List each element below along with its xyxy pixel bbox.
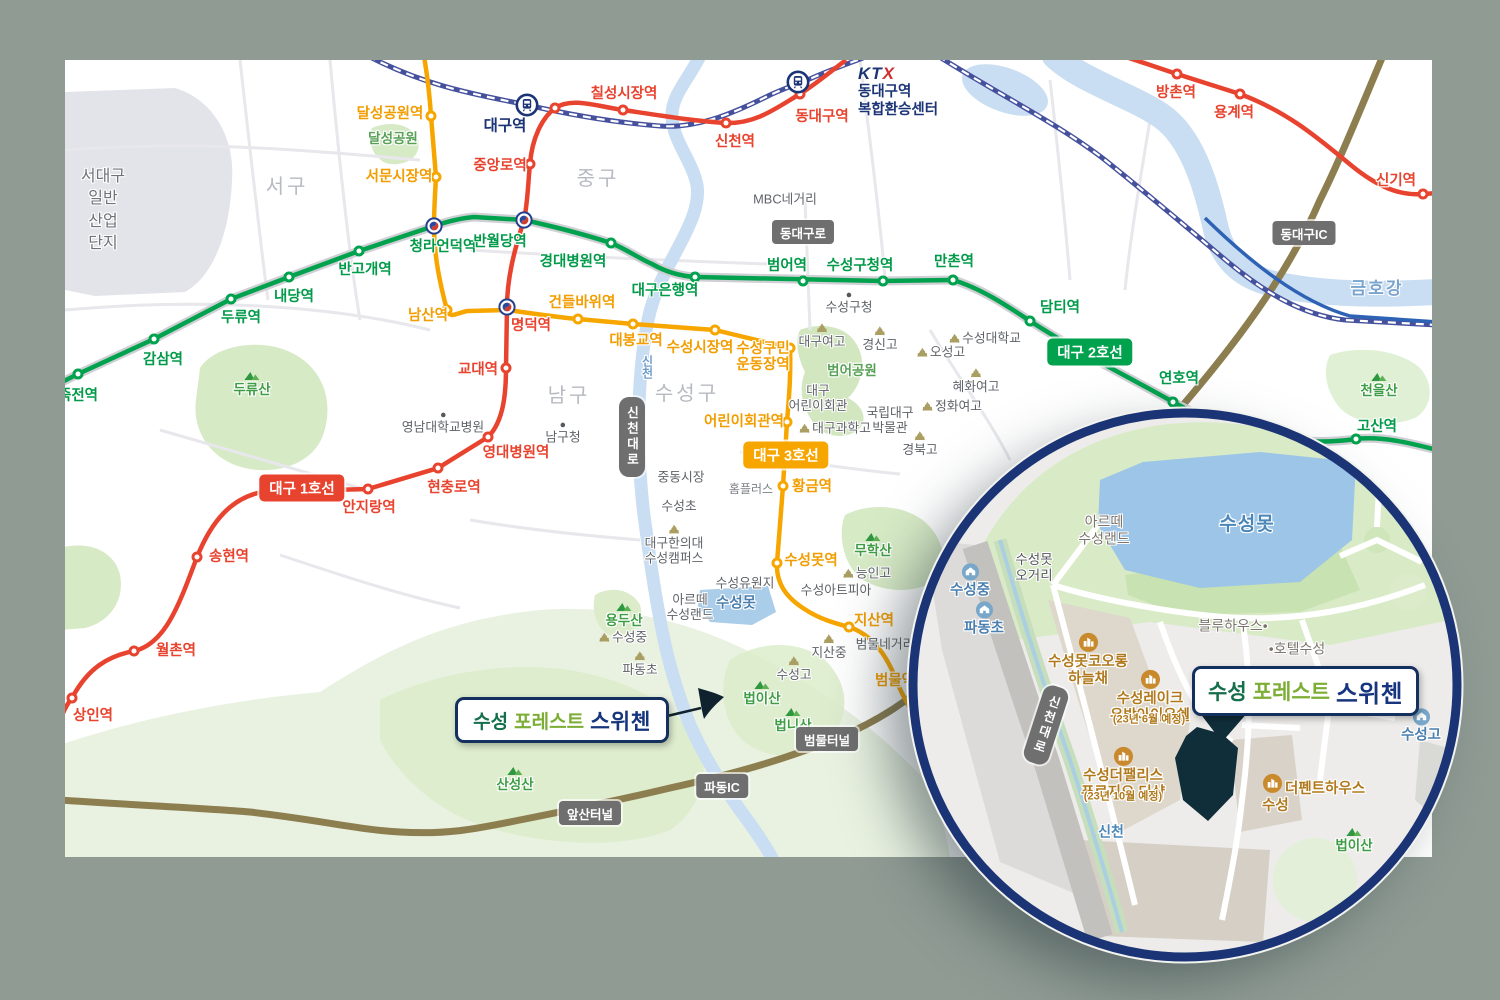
inset-label: 파동초 [964, 600, 1004, 637]
inset-label: (23년 10월 예정) [1084, 791, 1162, 804]
apartment-icon [1262, 773, 1283, 794]
inset-label: 블루하우스• [1198, 618, 1267, 635]
label-text: (23년 10월 예정) [1084, 791, 1162, 803]
label-text: 수성중 [950, 582, 990, 598]
label-text: 아르떼 수성랜드 [1078, 513, 1130, 546]
apartment-icon [1110, 669, 1190, 690]
inset-callout: 수성 포레스트 스위첸 [1192, 666, 1419, 716]
callout-part2: 포레스트 [1253, 676, 1330, 706]
inset-label: 수성못 [1219, 514, 1274, 536]
label-text: 블루하우스• [1198, 618, 1267, 634]
label-text: 신천 [1098, 824, 1124, 840]
inset-label: 법이산 [1335, 826, 1372, 854]
school-icon [950, 562, 990, 581]
mountain-icon [1335, 826, 1372, 837]
inset-label: 신천 [1098, 824, 1124, 841]
school-icon [964, 600, 1004, 619]
label-text: (23년 6월 예정) [1113, 714, 1185, 726]
inset-label: 수성중 [950, 562, 990, 599]
road-badge: 신천대로 [1021, 683, 1070, 767]
apartment-icon [1081, 746, 1165, 767]
inset-label: 수성못 오거리 [1015, 552, 1052, 584]
label-text: 수성고 [1401, 727, 1441, 743]
inset-label: 더펜트하우스 수성 [1262, 773, 1365, 815]
callout-part3: 스위첸 [1336, 674, 1403, 709]
inset-label: 아르떼 수성랜드 [1078, 513, 1130, 546]
callout-part1: 수성 [1208, 676, 1247, 706]
label-text: •호텔수성 [1269, 641, 1325, 657]
inset-label: (23년 6월 예정) [1113, 714, 1185, 727]
label-text: 파동초 [964, 620, 1004, 636]
apartment-icon [1048, 632, 1128, 653]
inset-label: •호텔수성 [1269, 641, 1325, 658]
label-text: 수성못 [1219, 514, 1274, 535]
label-text: 법이산 [1335, 838, 1372, 853]
label-text: 수성못 오거리 [1015, 552, 1052, 583]
map-screenshot: 서대구 일반 산업 단지서구중구남구수성구달성공원범어공원두류산무학산용두산법이… [0, 0, 1500, 1000]
